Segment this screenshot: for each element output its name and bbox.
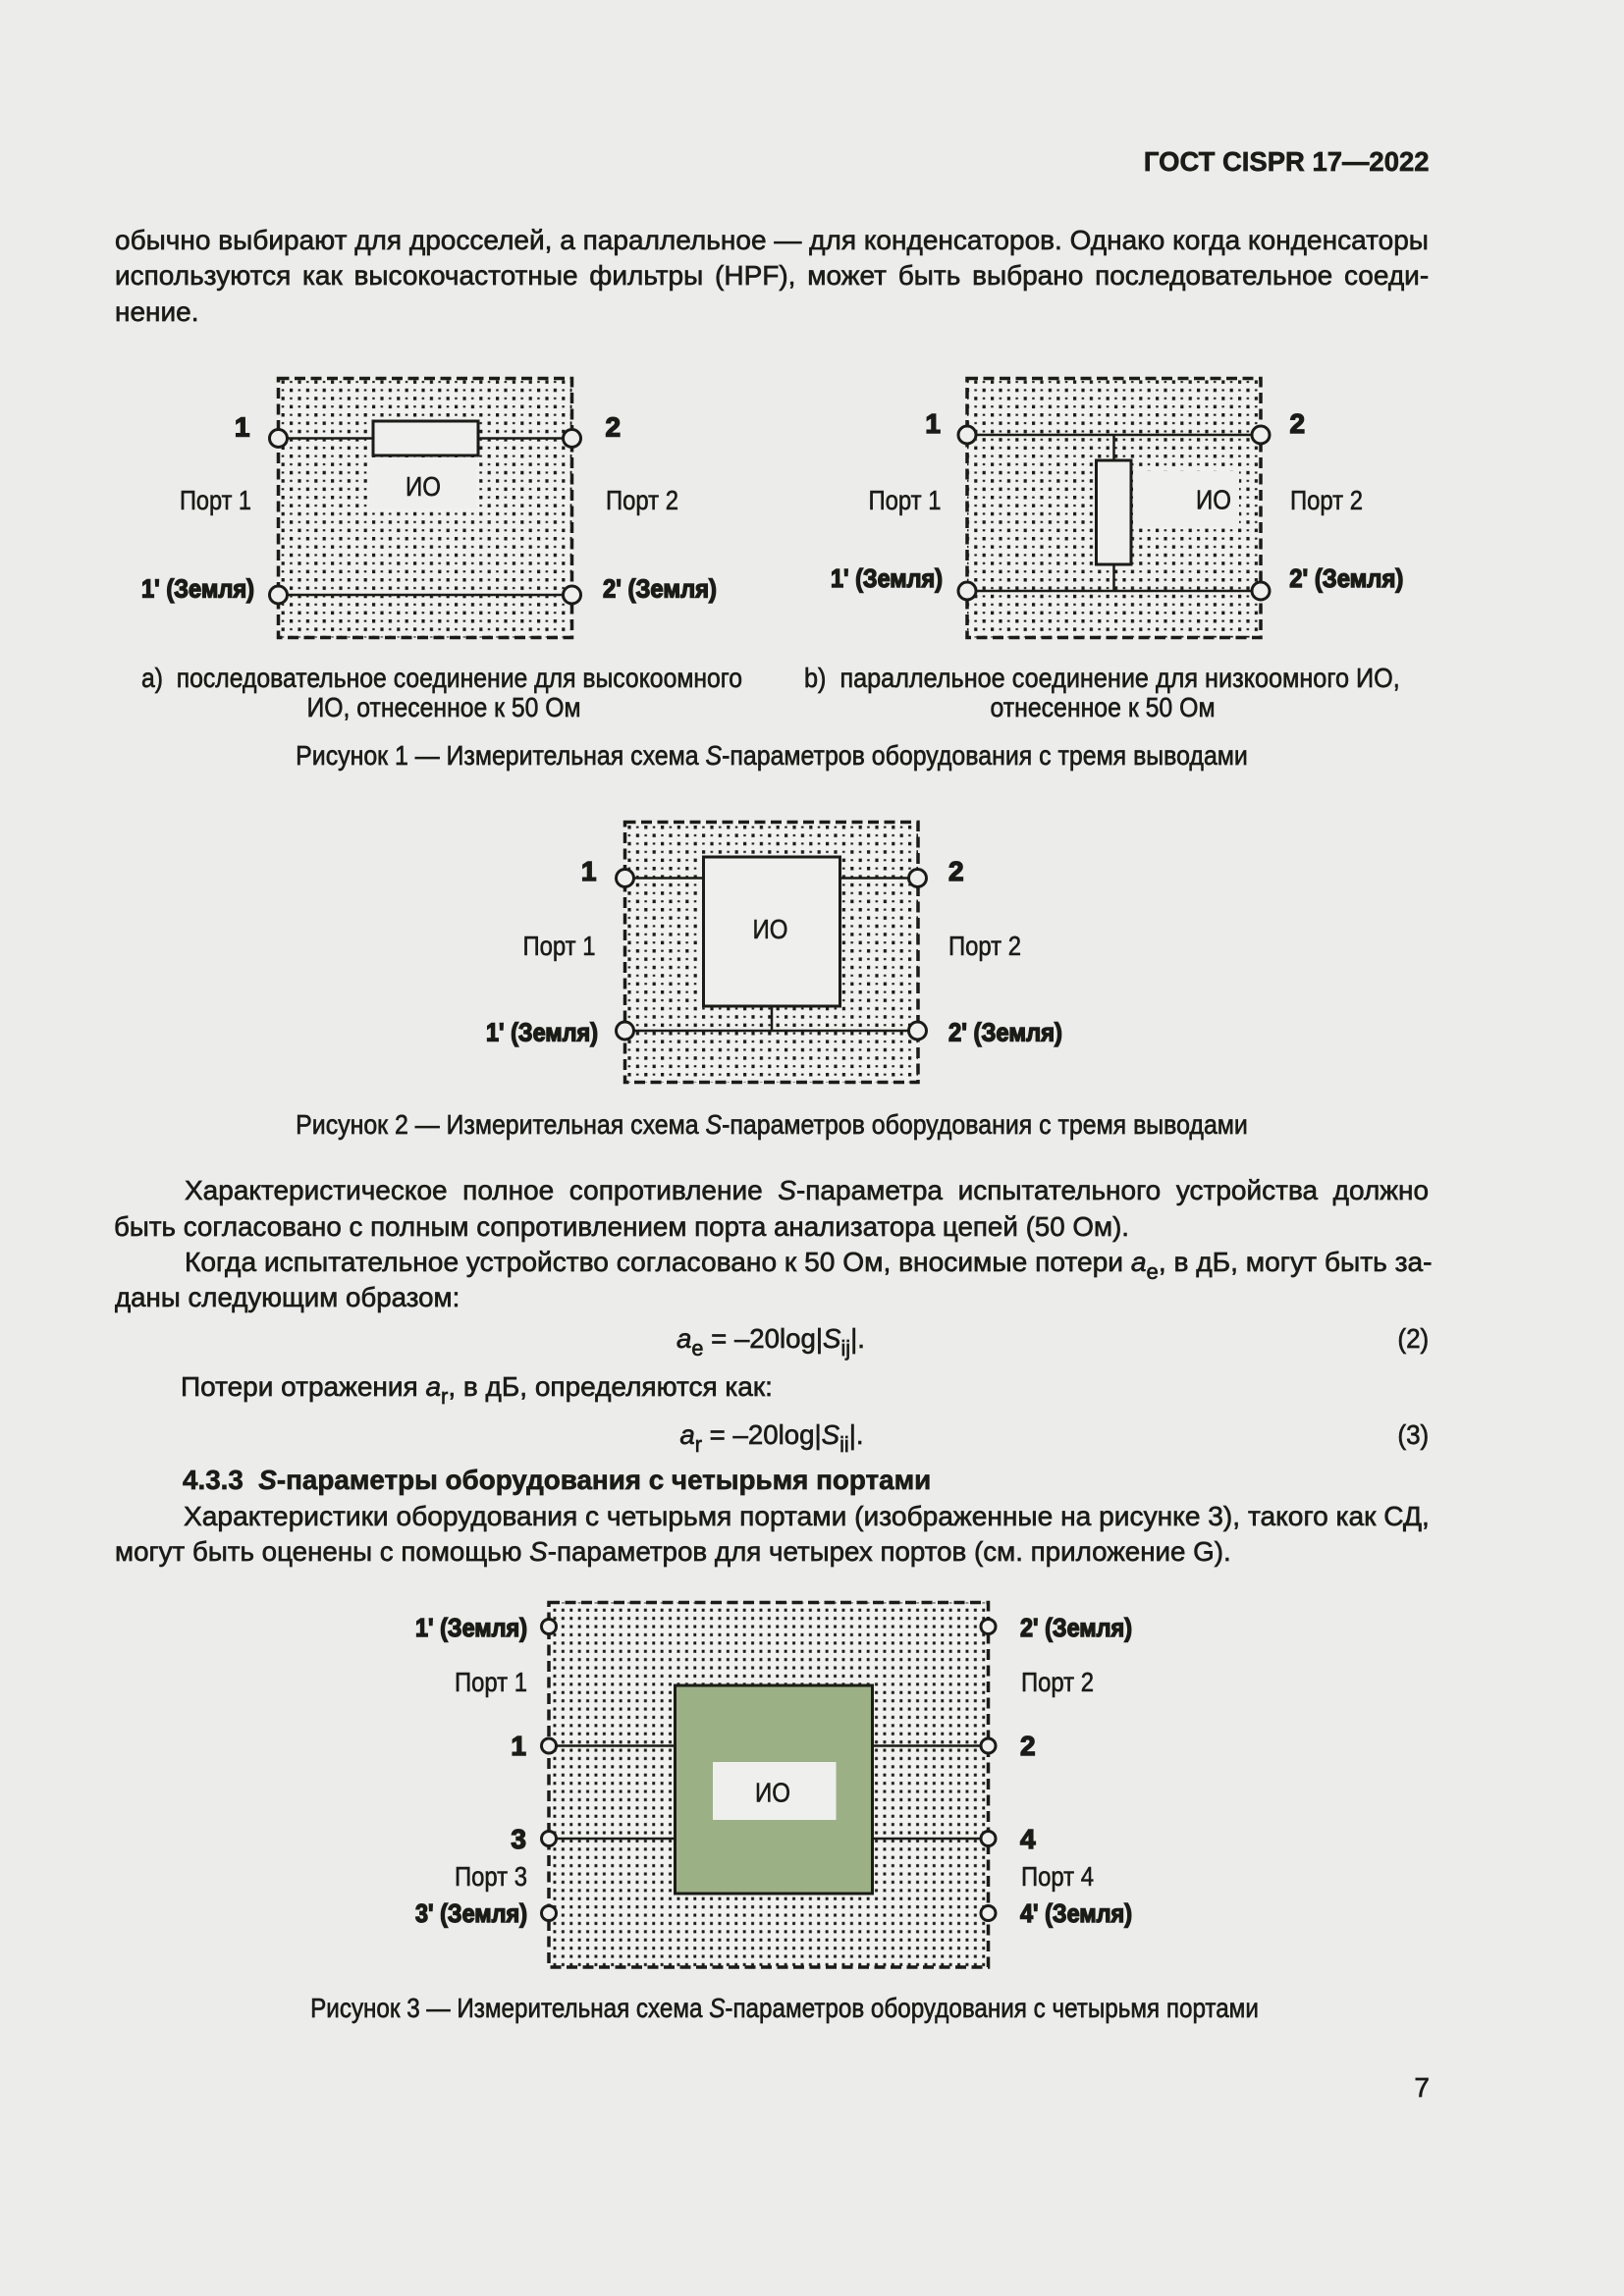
svg-text:Порт 2: Порт 2 <box>948 931 1021 961</box>
svg-text:Порт 1: Порт 1 <box>523 931 596 961</box>
svg-text:1' (Земля): 1' (Земля) <box>486 1018 598 1047</box>
svg-text:Порт 3: Порт 3 <box>455 1861 527 1892</box>
svg-text:3: 3 <box>511 1824 526 1854</box>
svg-text:Порт 1: Порт 1 <box>455 1667 527 1697</box>
svg-text:ИО: ИО <box>406 471 441 502</box>
svg-text:1' (Земля): 1' (Земля) <box>415 1613 527 1642</box>
svg-text:ИО: ИО <box>1196 485 1231 515</box>
svg-text:2' (Земля): 2' (Земля) <box>603 574 717 604</box>
svg-text:Порт 4: Порт 4 <box>1021 1861 1094 1892</box>
svg-text:Порт 2: Порт 2 <box>1021 1667 1094 1697</box>
svg-text:ИО: ИО <box>753 914 788 944</box>
svg-text:4: 4 <box>1020 1824 1036 1854</box>
svg-text:1: 1 <box>925 408 941 439</box>
svg-text:2: 2 <box>948 856 964 886</box>
svg-text:Порт 1: Порт 1 <box>869 485 942 515</box>
svg-text:4' (Земля): 4' (Земля) <box>1020 1898 1132 1928</box>
svg-text:2' (Земля): 2' (Земля) <box>948 1018 1062 1047</box>
svg-text:ИО: ИО <box>755 1778 790 1808</box>
svg-text:2: 2 <box>606 412 622 443</box>
svg-text:3' (Земля): 3' (Земля) <box>415 1898 527 1928</box>
svg-text:1: 1 <box>581 856 597 886</box>
svg-text:2: 2 <box>1020 1731 1036 1761</box>
svg-text:Порт 2: Порт 2 <box>1290 485 1363 515</box>
svg-text:1' (Земля): 1' (Земля) <box>831 563 943 593</box>
svg-text:2' (Земля): 2' (Земля) <box>1289 563 1403 593</box>
svg-text:1' (Земля): 1' (Земля) <box>141 574 254 604</box>
svg-text:1: 1 <box>511 1731 526 1761</box>
svg-text:2' (Земля): 2' (Земля) <box>1020 1613 1132 1642</box>
svg-text:1: 1 <box>235 412 250 443</box>
svg-text:Порт 1: Порт 1 <box>180 485 251 515</box>
svg-text:2: 2 <box>1290 408 1306 439</box>
svg-text:Порт 2: Порт 2 <box>606 485 678 515</box>
